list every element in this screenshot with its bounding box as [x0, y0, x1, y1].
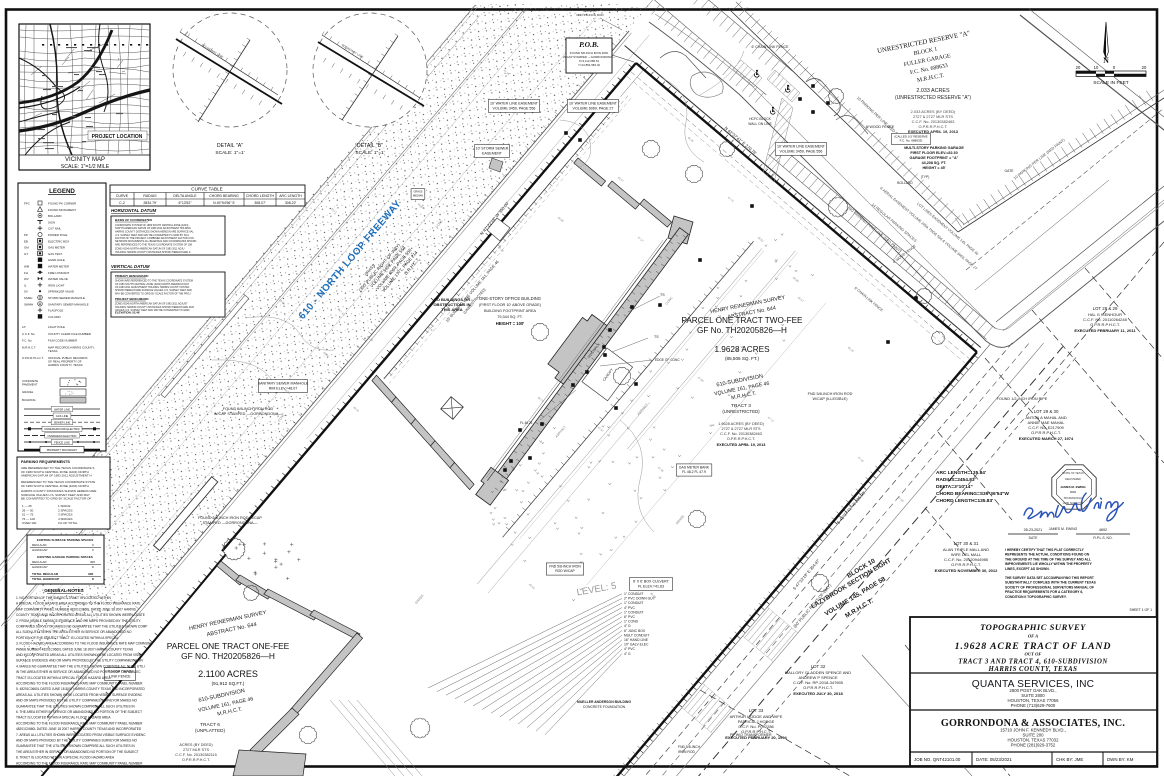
svg-text:SCALE: 1"=1': SCALE: 1"=1': [355, 150, 384, 156]
svg-text:8: 8: [92, 577, 94, 581]
svg-text:6' X 6' BOX CULVERT: 6' X 6' BOX CULVERT: [633, 580, 670, 584]
svg-text:GAS METER: GAS METER: [48, 246, 65, 250]
svg-text:O.P.R.R.P.H.C.T.: O.P.R.R.P.H.C.T.: [803, 685, 833, 690]
svg-text:PHONE (713)629-7600: PHONE (713)629-7600: [1011, 703, 1056, 708]
svg-text:GATE: GATE: [1005, 169, 1015, 173]
svg-text:COUNTY CLERK FILE NUMBER: COUNTY CLERK FILE NUMBER: [48, 332, 91, 336]
svg-text:FIRE HYDRANT: FIRE HYDRANT: [48, 271, 70, 275]
svg-text:SPRINKLER VALVE: SPRINKLER VALVE: [48, 290, 74, 294]
svg-text:SEWER LINE: SEWER LINE: [54, 421, 71, 425]
svg-text:OUT OF: OUT OF: [1025, 652, 1042, 657]
svg-text:EB: EB: [24, 239, 28, 243]
svg-text:WALL ON LINE: WALL ON LINE: [748, 122, 772, 126]
svg-text:4" G: 4" G: [624, 652, 631, 656]
svg-text:10' WATER LINE EASEMENT: 10' WATER LINE EASEMENT: [490, 102, 539, 106]
svg-text:CHORD LENGTH=135.83': CHORD LENGTH=135.83': [936, 498, 993, 504]
svg-text:SURFACE EVIDENCE AND OR MAPS P: SURFACE EVIDENCE AND OR MAPS PROVIDED BY…: [16, 659, 144, 663]
svg-text:P.O.B.: P.O.B.: [579, 40, 599, 49]
svg-text:THE GROUND AT THE TIME OF THE: THE GROUND AT THE TIME OF THE SURVEY AND…: [1005, 557, 1091, 561]
svg-text:REGISTERED: REGISTERED: [1065, 478, 1081, 481]
svg-text:FIRST FLOOR ELEV.=52.30: FIRST FLOOR ELEV.=52.30: [910, 151, 957, 155]
svg-text:TOTAL REGULAR: TOTAL REGULAR: [32, 572, 59, 576]
svg-text:EDGE OF CONC: EDGE OF CONC: [655, 358, 680, 362]
svg-text:CHORD BEARING=S39°36'54"W: CHORD BEARING=S39°36'54"W: [936, 491, 1009, 497]
svg-text:2727 MLR STS: 2727 MLR STS: [183, 748, 209, 752]
svg-text:COLUMN: COLUMN: [48, 315, 61, 319]
svg-text:LINES, EXCEPT AS SHOWN.: LINES, EXCEPT AS SHOWN.: [1005, 567, 1050, 571]
svg-text:F.C. No. 688633): F.C. No. 688633): [900, 139, 923, 143]
svg-text:FND 5/8-INCH ROD: FND 5/8-INCH ROD: [576, 13, 604, 17]
svg-text:Y=13,854,583.32: Y=13,854,583.32: [578, 63, 600, 67]
svg-text:TOTAL HANDICAP: TOTAL HANDICAP: [32, 577, 59, 581]
svg-text:AND OR MAPS PROVIDED BY THE UT: AND OR MAPS PROVIDED BY THE UTILITY COMP…: [16, 699, 138, 703]
svg-text:2.033 ACRES: 2.033 ACRES: [916, 88, 950, 94]
svg-text:IN THE AREA EITHER IN SERVICE: IN THE AREA EITHER IN SERVICE OR ABANDON…: [16, 670, 141, 674]
svg-text:FND 5/8-INCH IRON: FND 5/8-INCH IRON: [549, 565, 581, 569]
svg-text:16" HAND LINE: 16" HAND LINE: [624, 638, 649, 642]
svg-text:O.P.R.R.P.H.C.T.: O.P.R.R.P.H.C.T.: [741, 729, 771, 734]
svg-text:GUARANTEE THAT THE UTILITIES S: GUARANTEE THAT THE UTILITIES SHOWN COMPR…: [16, 704, 135, 708]
svg-text:FND 5/8-INCH IRON ROD: FND 5/8-INCH IRON ROD: [808, 392, 853, 396]
svg-text:IRON ROD: IRON ROD: [678, 750, 696, 754]
svg-text:10' STORM SEWER: 10' STORM SEWER: [476, 147, 509, 151]
svg-text:4692: 4692: [1070, 490, 1077, 494]
svg-text:VOLUME 3459, PAGE 556: VOLUME 3459, PAGE 556: [493, 106, 536, 110]
svg-text:EXECUTED NOVEMBER 30, 2012: EXECUTED NOVEMBER 30, 2012: [935, 568, 998, 573]
svg-text:44,208 SQ. FT.: 44,208 SQ. FT.: [922, 161, 947, 165]
svg-text:SUBSTANTIALLY COMPLIES WITH TH: SUBSTANTIALLY COMPLIES WITH THE CURRENT …: [1005, 581, 1097, 585]
svg-text:(85,506 SQ. FT.): (85,506 SQ. FT.): [725, 356, 759, 361]
svg-text:TEXAS: TEXAS: [48, 349, 58, 353]
svg-text:MULT CONDUIT: MULT CONDUIT: [624, 633, 649, 637]
svg-text:2727 & 2727 MLR STS: 2727 & 2727 MLR STS: [721, 427, 761, 431]
svg-text:F.C. No.: F.C. No.: [22, 339, 33, 343]
svg-text:6" PVC: 6" PVC: [624, 615, 636, 619]
svg-text:(FIRST FLOOR 10' ABOVE GRADE): (FIRST FLOOR 10' ABOVE GRADE): [479, 303, 542, 307]
svg-text:(UNPLATTED): (UNPLATTED): [195, 728, 225, 733]
svg-text:JOB NO. QNT42101.00: JOB NO. QNT42101.00: [914, 757, 961, 762]
svg-text:BOLLARD: BOLLARD: [48, 214, 62, 218]
svg-text:MUELLER ANDERSON BUILDING: MUELLER ANDERSON BUILDING: [577, 700, 631, 704]
svg-text:GM: GM: [24, 246, 29, 250]
svg-text:WATER METER: WATER METER: [48, 265, 69, 269]
svg-text:HAND HOLE: HAND HOLE: [48, 258, 65, 262]
svg-text:POWER POLE: POWER POLE: [48, 233, 68, 237]
svg-text:JAMES M. EWING: JAMES M. EWING: [1060, 485, 1086, 489]
svg-text:PHONE (281)929-3752: PHONE (281)929-3752: [1011, 743, 1056, 748]
svg-text:WATER LINE: WATER LINE: [54, 407, 70, 411]
svg-text:LOT 28 & 29: LOT 28 & 29: [1093, 306, 1118, 311]
svg-text:IRON LIGHT: IRON LIGHT: [48, 283, 65, 287]
svg-text:HEIGHT = 100': HEIGHT = 100': [496, 321, 525, 326]
svg-text:HARRIS COUNTY, TEXAS: HARRIS COUNTY, TEXAS: [48, 363, 83, 367]
svg-text:IL: IL: [24, 283, 27, 287]
svg-text:FOUND PK CORNER: FOUND PK CORNER: [48, 202, 76, 206]
svg-text:MAY BE CONVERTED TO GRID BY SC: MAY BE CONVERTED TO GRID BY SCALE FACTOR…: [115, 293, 191, 296]
svg-text:1. NO PORTION OF THE SUBJECT T: 1. NO PORTION OF THE SUBJECT TRACT IS LO…: [16, 596, 111, 600]
svg-text:EXECUTED JULY 30, 2018: EXECUTED JULY 30, 2018: [793, 691, 843, 696]
svg-text:GARAGE FOOTPRINT = "A": GARAGE FOOTPRINT = "A": [910, 156, 959, 160]
svg-text:WATER VALVE: WATER VALVE: [48, 277, 68, 281]
svg-text:GAS METER BANK: GAS METER BANK: [679, 466, 710, 470]
svg-text:SOCIETY OF PROFESSIONAL SURVEY: SOCIETY OF PROFESSIONAL SURVEYORS MANUAL…: [1005, 585, 1094, 589]
svg-text:48201C0660L DATED JUNE 18 2007: 48201C0660L DATED JUNE 18 2007 HARRIS CO…: [16, 727, 142, 731]
svg-text:REGULAR: REGULAR: [32, 543, 47, 547]
svg-text:4" G: 4" G: [624, 624, 631, 628]
svg-text:CURVE: CURVE: [116, 194, 129, 198]
svg-text:A SPECIAL FLOOD HAZARD AREA AC: A SPECIAL FLOOD HAZARD AREA ACCORDING TO…: [16, 602, 141, 606]
svg-text:VOLUME 3459, PAGE 556: VOLUME 3459, PAGE 556: [780, 149, 823, 153]
svg-text:UNDERGROUND ELECTRIC: UNDERGROUND ELECTRIC: [44, 427, 80, 431]
svg-text:LEGEND: LEGEND: [49, 188, 75, 195]
svg-text:W/CAP (ILLEGIBLE): W/CAP (ILLEGIBLE): [813, 397, 849, 401]
svg-text:EASEMENT: EASEMENT: [482, 151, 503, 155]
svg-text:FL 48.2 FL 47.9: FL 48.2 FL 47.9: [682, 470, 706, 474]
svg-text:LOT 32: LOT 32: [811, 664, 826, 669]
svg-text:ACCORDING TO THE FLOOD INSURAN: ACCORDING TO THE FLOOD INSURANCE RATE MA…: [16, 682, 143, 686]
svg-text:6°13'52": 6°13'52": [178, 201, 192, 205]
svg-text:PARKING REQUIREMENTS: PARKING REQUIREMENTS: [21, 460, 70, 464]
svg-text:7. AREAS ALL UTILITIES SHOWN W: 7. AREAS ALL UTILITIES SHOWN WERE LOCATE…: [16, 733, 146, 737]
svg-text:N: N: [1103, 56, 1109, 65]
svg-text:1.9628 ACRE TRACT OF LAND: 1.9628 ACRE TRACT OF LAND: [955, 641, 1112, 652]
svg-text:WM: WM: [24, 265, 30, 269]
svg-text:GENERAL NOTES: GENERAL NOTES: [44, 588, 83, 593]
svg-text:CHK BY: JME: CHK BY: JME: [1056, 757, 1083, 762]
svg-text:10" GALV ELEC: 10" GALV ELEC: [624, 643, 649, 647]
svg-text:ACCORDING TO THE FLOOD INSURAN: ACCORDING TO THE FLOOD INSURANCE RATE MA…: [16, 721, 143, 725]
svg-text:PARCEL ONE TRACT TWO-FEE: PARCEL ONE TRACT TWO-FEE: [681, 316, 803, 325]
svg-text:HORIZONTAL DATUM: HORIZONTAL DATUM: [111, 208, 156, 213]
svg-text:BOLLARD: BOLLARD: [897, 181, 913, 185]
svg-text:O.P.R.R.P.H.C.T.: O.P.R.R.P.H.C.T.: [22, 356, 44, 360]
svg-text:4692: 4692: [1099, 528, 1107, 532]
svg-text:N 49°54'56" E: N 49°54'56" E: [213, 201, 235, 205]
svg-text:ARC LENGTH=135.84': ARC LENGTH=135.84': [936, 470, 986, 476]
svg-text:LOT 33: LOT 33: [749, 708, 764, 713]
svg-text:ARE REFERENCED TO THE TEXAS CO: ARE REFERENCED TO THE TEXAS COORDINATE S…: [115, 244, 192, 247]
svg-text:O.P.R.R.P.H.C.T.: O.P.R.R.P.H.C.T.: [727, 437, 755, 441]
svg-text:PROPERTY BOUNDARY: PROPERTY BOUNDARY: [47, 448, 78, 452]
svg-text:ACCORDING TO THE FLOOD INSURAN: ACCORDING TO THE FLOOD INSURANCE RATE MA…: [16, 761, 143, 765]
svg-text:LIGHT POLE: LIGHT POLE: [48, 325, 65, 329]
svg-text:C.C.F. No. 20130382463: C.C.F. No. 20130382463: [720, 432, 762, 436]
svg-text:SIGN: SIGN: [48, 220, 55, 224]
svg-text:BUILDING FOOTPRINT AREA: BUILDING FOOTPRINT AREA: [484, 309, 537, 313]
svg-text:6" JUNC BOX: 6" JUNC BOX: [624, 629, 646, 633]
svg-text:GT: GT: [24, 252, 28, 256]
svg-text:OF 1983 SOUTH CENTRAL ZONE (42: OF 1983 SOUTH CENTRAL ZONE (4204) NORTH: [21, 484, 89, 488]
svg-text:(UNRESTRICTED RESERVE "A"): (UNRESTRICTED RESERVE "A"): [895, 95, 971, 101]
svg-text:FOUND 5/8-INCH IRON ROD: FOUND 5/8-INCH IRON ROD: [223, 407, 274, 411]
svg-text:SANITARY SEWER MANHOLE: SANITARY SEWER MANHOLE: [258, 382, 309, 386]
svg-text:O.P.R.R.P.H.C.T.: O.P.R.R.P.H.C.T.: [951, 562, 981, 567]
svg-text:CURVE TABLE: CURVE TABLE: [191, 187, 222, 192]
svg-text:TRACT IS LOCATED WITHIN A SPEC: TRACT IS LOCATED WITHIN A SPECIAL FLOOD …: [16, 676, 111, 680]
svg-text:ACRES (BY DEED): ACRES (BY DEED): [179, 743, 213, 747]
svg-text:10' WATER LINE EASEMENT: 10' WATER LINE EASEMENT: [777, 145, 826, 149]
svg-text:MULTI-STORY PARKING GARAGE: MULTI-STORY PARKING GARAGE: [904, 146, 964, 150]
svg-text:OVERHEAD ELECTRIC: OVERHEAD ELECTRIC: [47, 434, 76, 438]
svg-text:5. 48201C0660L DATED JUNE 18 2: 5. 48201C0660L DATED JUNE 18 2007 HARRIS…: [16, 687, 145, 691]
svg-text:W/CAP STAMPED —GORRONDONA—: W/CAP STAMPED —GORRONDONA—: [214, 412, 282, 416]
svg-text:COUNTY TEXAS AND INCORPORATED: COUNTY TEXAS AND INCORPORATED AREAS ALL …: [16, 613, 145, 617]
svg-text:1" CONDUIT: 1" CONDUIT: [624, 601, 643, 605]
svg-text:ARC LENGTH: ARC LENGTH: [279, 194, 302, 198]
svg-text:I HEREBY CERTIFY THAT THIS PLA: I HEREBY CERTIFY THAT THIS PLAT CORRECTL…: [1005, 548, 1085, 552]
svg-text:4" PVC: 4" PVC: [624, 647, 636, 651]
svg-text:PANEL NUMBER 48201C0660L DATED: PANEL NUMBER 48201C0660L DATED JUNE 18 2…: [16, 647, 133, 651]
svg-text:PRIMARY BENCHMARK:: PRIMARY BENCHMARK:: [115, 274, 149, 278]
svg-text:PAVEMENT: PAVEMENT: [22, 383, 38, 387]
svg-text:1.9628 ACRES: 1.9628 ACRES: [714, 345, 770, 354]
svg-text:FOUND 5/8-INCH IRON ROD W/CAP: FOUND 5/8-INCH IRON ROD W/CAP: [198, 516, 262, 520]
svg-text:05-23-2021: 05-23-2021: [1024, 528, 1042, 532]
svg-text:RADIUS=2454.83': RADIUS=2454.83': [936, 477, 976, 483]
svg-text:1" CONDUIT: 1" CONDUIT: [624, 610, 643, 614]
svg-text:306: 306: [90, 560, 95, 564]
svg-text:ALL SUCH UTILITIES IN THE AREA: ALL SUCH UTILITIES IN THE AREA EITHER IN…: [16, 630, 132, 634]
svg-text:M.R.H.C.T.: M.R.H.C.T.: [22, 345, 36, 349]
svg-text:THE AREA EITHER IN SERVICE OR: THE AREA EITHER IN SERVICE OR ABANDONED …: [16, 750, 139, 754]
svg-text:FH: FH: [24, 271, 28, 275]
svg-text:79,344 SQ. FT.: 79,344 SQ. FT.: [497, 315, 523, 319]
svg-text:6' CHAIN LINK FENCE: 6' CHAIN LINK FENCE: [751, 45, 789, 49]
svg-text:20: 20: [1076, 65, 1081, 70]
svg-text:HEIGHT = 45': HEIGHT = 45': [922, 166, 945, 170]
svg-text:8. TRACT IS LOCATED WITHIN A S: 8. TRACT IS LOCATED WITHIN A SPECIAL FLO…: [16, 756, 115, 760]
svg-text:VOLUME 6069, PAGE 27: VOLUME 6069, PAGE 27: [573, 106, 614, 110]
svg-text:IMPROVEMENTS LIE WHOLLY WITHIN: IMPROVEMENTS LIE WHOLLY WITHIN THE PROPE…: [1005, 562, 1093, 566]
svg-text:HOLDING HARRIS COUNTY DISTANCE: HOLDING HARRIS COUNTY DISTANCES SHOWN HE…: [115, 251, 191, 254]
svg-text:O.P.R.R.P.H.C.T.: O.P.R.R.P.H.C.T.: [182, 758, 210, 762]
svg-text:SWMH: SWMH: [24, 302, 33, 306]
svg-text:ELECTRIC BOX: ELECTRIC BOX: [48, 239, 69, 243]
svg-text:2" PVC DOWN GUY: 2" PVC DOWN GUY: [624, 597, 656, 601]
svg-text:AND INCORPORATED AREAS ALL UTI: AND INCORPORATED AREAS ALL UTILITIES SHO…: [16, 653, 143, 657]
svg-text:ONE-STORY OFFICE BUILDING: ONE-STORY OFFICE BUILDING: [479, 296, 541, 301]
svg-text:ELEVATION: 52.49': ELEVATION: 52.49': [115, 311, 140, 315]
svg-text:GAS TEST: GAS TEST: [48, 252, 62, 256]
svg-text:PRACTICE REQUIREMENTS FOR A CA: PRACTICE REQUIREMENTS FOR A CATEGORY 6,: [1005, 590, 1083, 594]
svg-text:LOT 29 & 30: LOT 29 & 30: [1034, 409, 1059, 414]
svg-text:PARCEL ONE TRACT ONE-FEE: PARCEL ONE TRACT ONE-FEE: [167, 641, 290, 651]
svg-text:ROD W/CAP: ROD W/CAP: [555, 569, 575, 573]
svg-text:SCALE: 1"=1': SCALE: 1"=1': [215, 150, 244, 156]
svg-text:PP: PP: [24, 233, 28, 237]
svg-text:SCALE: 1"=1/2 MILE: SCALE: 1"=1/2 MILE: [61, 164, 110, 170]
svg-text:CHORD LENGTH: CHORD LENGTH: [246, 194, 274, 198]
svg-text:C.C.F. No. 20130382115: C.C.F. No. 20130382115: [175, 753, 217, 757]
svg-text:4" PVC: 4" PVC: [624, 606, 636, 610]
svg-text:JAMES M. EWING: JAMES M. EWING: [1049, 527, 1078, 531]
svg-text:DELTA ANGLE: DELTA ANGLE: [173, 194, 197, 198]
svg-text:BUILDING: BUILDING: [22, 398, 36, 402]
svg-text:TS: TS: [660, 293, 665, 297]
svg-text:LINK FENCE: LINK FENCE: [109, 674, 131, 678]
svg-text:C-2: C-2: [119, 201, 125, 205]
svg-text:2. FROM VISIBLE SURFACE EVIDEN: 2. FROM VISIBLE SURFACE EVIDENCE AND OR …: [16, 619, 141, 623]
svg-text:DELTA=3°10'14": DELTA=3°10'14": [936, 484, 973, 490]
svg-text:EXISTING GARAGE PARKING SPACES: EXISTING GARAGE PARKING SPACES: [37, 555, 92, 559]
svg-text:LAND SURVEYOR: LAND SURVEYOR: [1063, 502, 1084, 505]
svg-text:VICINITY MAP: VICINITY MAP: [65, 157, 105, 163]
svg-text:(UNRESTRICTED): (UNRESTRICTED): [722, 409, 760, 414]
svg-text:(TYP): (TYP): [921, 175, 930, 179]
svg-text:2834.79': 2834.79': [143, 201, 157, 205]
svg-text:THE SURVEY DATA SET ACCOMPANYI: THE SURVEY DATA SET ACCOMPANYING THIS RE…: [1005, 576, 1094, 580]
svg-text:RADIUS: RADIUS: [143, 194, 157, 198]
svg-text:LP: LP: [22, 325, 26, 329]
svg-text:O.P.R.R.P.H.C.T.: O.P.R.R.P.H.C.T.: [1090, 322, 1120, 327]
svg-text:1.9628 ACRES (BY DEED): 1.9628 ACRES (BY DEED): [718, 422, 764, 426]
svg-text:COMPANIES SURVEYOR MAKES NO GU: COMPANIES SURVEYOR MAKES NO GUARANTEE TH…: [16, 625, 147, 629]
svg-text:8' WOOD FENCE: 8' WOOD FENCE: [866, 125, 895, 129]
svg-text:SCALE IN FEET: SCALE IN FEET: [1093, 80, 1129, 86]
svg-text:STATE OF TEXAS: STATE OF TEXAS: [1062, 471, 1084, 475]
svg-text:SHEET 1 OF 1: SHEET 1 OF 1: [1129, 608, 1152, 612]
svg-text:MEDIAN: MEDIAN: [413, 193, 423, 197]
svg-text:MAP COMMUNITY PANEL NUMBER 482: MAP COMMUNITY PANEL NUMBER 48201C0660L D…: [16, 607, 136, 611]
svg-text:GRAVEL: GRAVEL: [22, 390, 34, 394]
svg-text:PROJECT BENCHMARK:: PROJECT BENCHMARK:: [115, 297, 149, 301]
svg-text:EXECUTED APRIL 19, 2013: EXECUTED APRIL 19, 2013: [908, 129, 959, 134]
svg-text:EXECUTED FEBRUARY 20, 1994: EXECUTED FEBRUARY 20, 1994: [725, 735, 787, 740]
svg-text:GAS LINE: GAS LINE: [56, 414, 69, 418]
svg-text:EXECUTED MARCH 27, 1974: EXECUTED MARCH 27, 1974: [1019, 436, 1074, 441]
svg-text:EXECUTED APRIL 19, 2013: EXECUTED APRIL 19, 2013: [717, 443, 766, 447]
svg-text:6. THE AREA EITHER IN SERVICE: 6. THE AREA EITHER IN SERVICE OR ABANDON…: [16, 710, 142, 714]
svg-text:306: 306: [88, 572, 93, 576]
svg-text:CUT NAIL: CUT NAIL: [48, 227, 62, 231]
svg-text:FENCE LINE: FENCE LINE: [54, 440, 70, 444]
svg-text:1" COND: 1" COND: [624, 620, 639, 624]
svg-text:1" CONDUIT: 1" CONDUIT: [624, 592, 643, 596]
svg-text:BASIS OF COORDINATES: BASIS OF COORDINATES: [115, 218, 152, 222]
svg-text:LOT 30 & 31: LOT 30 & 31: [954, 541, 979, 546]
svg-text:TOPOGRAPHIC SURVEY: TOPOGRAPHIC SURVEY: [980, 622, 1086, 632]
svg-text:REPRESENTS THE ACTUAL CONDITIO: REPRESENTS THE ACTUAL CONDITIONS FOUND O…: [1005, 553, 1090, 557]
svg-text:OF A: OF A: [1028, 634, 1038, 639]
svg-text:308.22': 308.22': [285, 201, 297, 205]
svg-text:3. FLOOD HAZARD AREA ACCORDING: 3. FLOOD HAZARD AREA ACCORDING TO THE FL…: [16, 642, 151, 646]
svg-text:GUARANTEE THAT THE UTILITIES S: GUARANTEE THAT THE UTILITIES SHOWN COMPR…: [16, 744, 135, 748]
svg-text:CONDITION II TOPOGRAPHIC SURVE: CONDITION II TOPOGRAPHIC SURVEY.: [1005, 595, 1067, 599]
svg-text:FL 46.21: FL 46.21: [520, 421, 533, 425]
svg-text:R.P.L.S. NO.: R.P.L.S. NO.: [1093, 536, 1112, 540]
svg-text:GRASS: GRASS: [413, 190, 422, 194]
svg-text:GF NO. TH20205826—H: GF NO. TH20205826—H: [181, 651, 275, 661]
svg-text:REGULAR: REGULAR: [32, 560, 47, 564]
svg-text:SV: SV: [24, 290, 28, 294]
svg-text:10' WATER LINE EASEMENT: 10' WATER LINE EASEMENT: [569, 102, 618, 106]
svg-text:EXECUTED FEBRUARY 11, 2011: EXECUTED FEBRUARY 11, 2011: [1074, 328, 1136, 333]
svg-text:CONCRETE FOUNDATION: CONCRETE FOUNDATION: [583, 705, 626, 709]
svg-text:STORM SEWER MANHOLE: STORM SEWER MANHOLE: [48, 296, 85, 300]
svg-text:CHORD BEARING: CHORD BEARING: [209, 194, 239, 198]
svg-text:GF No. TH20205826—H: GF No. TH20205826—H: [697, 326, 787, 335]
svg-text:SSMH: SSMH: [24, 296, 32, 300]
svg-text:PROJECT LOCATION: PROJECT LOCATION: [92, 134, 143, 140]
svg-text:308.07': 308.07': [254, 201, 266, 205]
svg-text:TRACT IS LOCATED WITHIN A SPEC: TRACT IS LOCATED WITHIN A SPECIAL FLOOD …: [16, 716, 111, 720]
svg-text:10: 10: [1094, 65, 1099, 70]
svg-text:DATE: DATE: [1029, 536, 1039, 540]
svg-text:FILM CODE NUMBER: FILM CODE NUMBER: [48, 339, 77, 343]
svg-text:HANDICAP: HANDICAP: [32, 548, 48, 552]
svg-text:PORTION OF THE SUBJECT TRACT I: PORTION OF THE SUBJECT TRACT IS LOCATED …: [16, 636, 119, 640]
svg-text:BE CONVERTED TO GRID BY SCALE: BE CONVERTED TO GRID BY SCALE FACTOR OF: [21, 497, 91, 501]
svg-text:SANITARY SEWER MANHOLE: SANITARY SEWER MANHOLE: [48, 302, 89, 306]
svg-text:4. MAKES NO GUARANTEE THAT THE: 4. MAKES NO GUARANTEE THAT THE UTILITIES…: [16, 664, 145, 668]
svg-text:STAMPED —GORRONDONA—: STAMPED —GORRONDONA—: [203, 521, 258, 525]
svg-text:AREAS ALL UTILITIES SHOWN WERE: AREAS ALL UTILITIES SHOWN WERE LOCATED F…: [16, 693, 143, 697]
svg-text:C.C.F. No.: C.C.F. No.: [22, 332, 36, 336]
svg-text:(91,912 SQ.FT.): (91,912 SQ.FT.): [212, 681, 245, 686]
svg-text:DATE: 05/23/2021: DATE: 05/23/2021: [976, 757, 1012, 762]
svg-text:HARRIS COUNTY, TEXAS: HARRIS COUNTY, TEXAS: [988, 666, 1078, 673]
svg-text:EXISTING SURFACE PARKING SPACE: EXISTING SURFACE PARKING SPACES: [37, 538, 94, 542]
svg-text:VERTICAL DATUM: VERTICAL DATUM: [111, 264, 150, 269]
svg-text:OVER 100: OVER 100: [22, 521, 37, 525]
svg-text:O.P.R.R.P.H.C.T.: O.P.R.R.P.H.C.T.: [1031, 430, 1061, 435]
svg-text:20: 20: [1142, 65, 1147, 70]
svg-text:FL ELEV.=41.63: FL ELEV.=41.63: [638, 584, 664, 588]
svg-text:FPC: FPC: [24, 202, 30, 206]
svg-text:WV: WV: [24, 277, 29, 281]
svg-text:PROFESSIONAL: PROFESSIONAL: [1064, 497, 1083, 500]
svg-text:2.1100 ACRES: 2.1100 ACRES: [198, 669, 258, 679]
svg-text:DWN BY: KM: DWN BY: KM: [1107, 757, 1134, 762]
svg-text:DETAIL "A": DETAIL "A": [217, 143, 243, 149]
svg-text:FOUND MONUMENT: FOUND MONUMENT: [48, 208, 76, 212]
svg-text:HCFC BLOCK: HCFC BLOCK: [749, 117, 772, 121]
svg-text:1% OF TOTAL: 1% OF TOTAL: [58, 521, 78, 525]
svg-text:DETAIL "B": DETAIL "B": [357, 143, 383, 149]
svg-text:HANDICAP: HANDICAP: [32, 565, 48, 569]
svg-text:AND OR MAPS PROVIDED BY THE UT: AND OR MAPS PROVIDED BY THE UTILITY COMP…: [16, 739, 138, 743]
svg-text:TS: TS: [654, 335, 659, 339]
svg-text:TRACT 3 AND TRACT 4, 610-SUBDI: TRACT 3 AND TRACT 4, 610-SUBDIVISION: [958, 659, 1108, 666]
svg-text:FND 5/8-INCH: FND 5/8-INCH: [678, 745, 701, 749]
svg-text:FLAGPOLE: FLAGPOLE: [48, 309, 63, 313]
svg-text:AMERICAN DATUM OF 1983 2011 AD: AMERICAN DATUM OF 1983 2011 ADJUSTMENT H: [21, 474, 92, 478]
